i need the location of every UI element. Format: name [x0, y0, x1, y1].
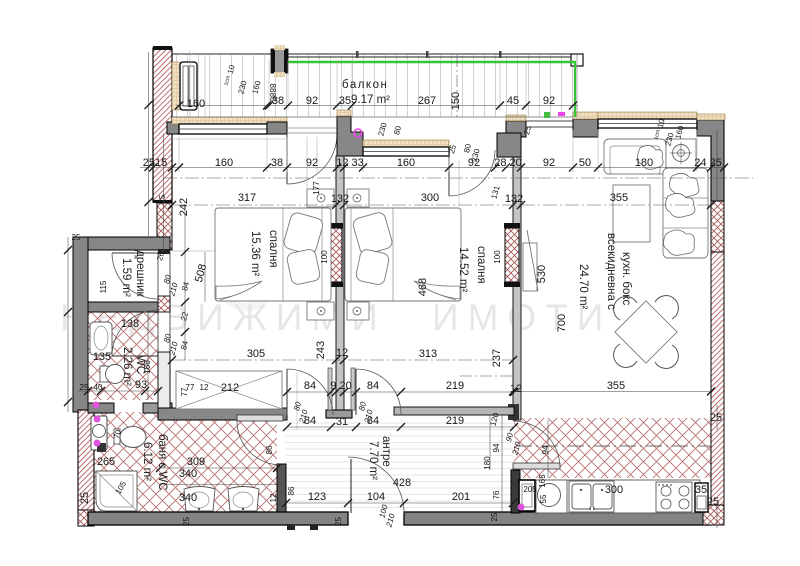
svg-text:309: 309 — [187, 456, 205, 468]
svg-text:123: 123 — [308, 491, 326, 503]
svg-text:84: 84 — [304, 415, 316, 427]
svg-text:балкон: балкон — [342, 79, 388, 91]
svg-text:25: 25 — [182, 517, 191, 526]
svg-text:25: 25 — [490, 512, 499, 521]
svg-text:7.70 m²: 7.70 m² — [367, 441, 379, 480]
svg-text:дрешник: дрешник — [134, 250, 146, 298]
svg-text:24 25: 24 25 — [694, 157, 722, 169]
svg-text:25: 25 — [710, 412, 722, 424]
svg-text:94: 94 — [541, 445, 550, 454]
svg-text:86: 86 — [287, 486, 296, 495]
svg-text:25: 25 — [79, 492, 91, 504]
svg-text:86: 86 — [265, 445, 274, 454]
svg-text:115: 115 — [99, 280, 108, 293]
svg-text:45: 45 — [507, 95, 519, 107]
svg-text:237: 237 — [491, 349, 503, 367]
svg-text:спалня: спалня — [267, 230, 279, 268]
svg-text:50: 50 — [579, 157, 591, 169]
svg-text:267: 267 — [418, 95, 436, 107]
svg-text:12: 12 — [269, 493, 278, 502]
svg-text:15.36 m²: 15.36 m² — [249, 231, 261, 277]
svg-text:76: 76 — [492, 490, 501, 499]
svg-text:2.26 m²: 2.26 m² — [121, 347, 133, 386]
svg-text:100: 100 — [320, 250, 329, 264]
svg-text:305: 305 — [247, 348, 265, 360]
svg-text:77: 77 — [180, 387, 189, 396]
svg-text:55: 55 — [539, 494, 548, 503]
svg-text:24.70 m²: 24.70 m² — [577, 264, 589, 310]
svg-text:12 33: 12 33 — [336, 157, 364, 169]
svg-text:꞉: ꞉ — [337, 393, 346, 395]
svg-text:баня с WC: баня с WC — [156, 434, 168, 491]
svg-text:9 20: 9 20 — [330, 380, 351, 392]
svg-text:2515: 2515 — [143, 157, 167, 169]
svg-text:700: 700 — [556, 314, 568, 332]
svg-text:25: 25 — [72, 233, 81, 242]
svg-text:177: 177 — [312, 181, 321, 195]
svg-text:135: 135 — [93, 351, 111, 363]
svg-text:265: 265 — [97, 456, 115, 468]
svg-text:88: 88 — [268, 93, 277, 102]
svg-text:300: 300 — [421, 192, 439, 204]
svg-text:25: 25 — [158, 194, 167, 203]
svg-text:313: 313 — [419, 348, 437, 360]
svg-text:92: 92 — [306, 157, 318, 169]
svg-text:25: 25 — [334, 517, 343, 526]
svg-text:166: 166 — [143, 360, 152, 374]
svg-text:31: 31 — [336, 416, 348, 428]
svg-text:205: 205 — [523, 485, 537, 494]
svg-text:35: 35 — [339, 95, 351, 107]
svg-text:219: 219 — [446, 380, 464, 392]
svg-text:468: 468 — [417, 278, 429, 296]
svg-text:317: 317 — [238, 192, 256, 204]
svg-text:всекидневна с: всекидневна с — [605, 233, 617, 310]
svg-text:132: 132 — [331, 193, 349, 205]
svg-text:84: 84 — [367, 380, 379, 392]
svg-text:160: 160 — [187, 98, 205, 110]
svg-text:28 20: 28 20 — [494, 157, 522, 169]
svg-text:300: 300 — [605, 484, 623, 496]
svg-text:40: 40 — [94, 383, 103, 392]
svg-text:100: 100 — [493, 250, 502, 264]
svg-text:92: 92 — [543, 95, 555, 107]
svg-text:150: 150 — [450, 92, 462, 110]
svg-text:25: 25 — [80, 383, 89, 392]
svg-text:спалня: спалня — [475, 246, 487, 284]
svg-text:14.52 m²: 14.52 m² — [457, 247, 469, 293]
svg-text:160: 160 — [215, 157, 233, 169]
svg-text:25: 25 — [707, 496, 719, 508]
svg-text:антре: антре — [380, 436, 392, 467]
svg-text:9.17 m²: 9.17 m² — [351, 94, 390, 106]
svg-text:132: 132 — [505, 193, 523, 205]
svg-text:219: 219 — [446, 415, 464, 427]
svg-text:340: 340 — [179, 492, 197, 504]
svg-text:12: 12 — [200, 383, 209, 392]
svg-text:243: 243 — [315, 341, 327, 359]
svg-text:428: 428 — [393, 477, 411, 489]
svg-text:94: 94 — [492, 443, 501, 452]
svg-text:кухн. бокс: кухн. бокс — [620, 252, 632, 306]
svg-text:35: 35 — [695, 484, 707, 496]
svg-text:84: 84 — [304, 380, 316, 392]
svg-text:12: 12 — [510, 383, 522, 395]
svg-text:201: 201 — [452, 491, 470, 503]
svg-text:38: 38 — [271, 157, 283, 169]
svg-text:180: 180 — [635, 157, 653, 169]
svg-text:104: 104 — [367, 491, 385, 503]
svg-text:165: 165 — [538, 474, 547, 488]
svg-text:212: 212 — [221, 382, 239, 394]
svg-text:242: 242 — [178, 198, 190, 216]
svg-text:1.59 m²: 1.59 m² — [120, 258, 132, 297]
svg-text:160: 160 — [397, 157, 415, 169]
svg-text:355: 355 — [607, 380, 625, 392]
svg-text:84: 84 — [367, 415, 379, 427]
svg-text:6.12 m²: 6.12 m² — [141, 442, 153, 481]
svg-text:92: 92 — [306, 95, 318, 107]
svg-text:355: 355 — [610, 192, 628, 204]
svg-text:180: 180 — [483, 456, 492, 470]
svg-text:92: 92 — [543, 157, 555, 169]
svg-text:138: 138 — [121, 318, 139, 330]
svg-text:530: 530 — [536, 265, 548, 283]
svg-text:93: 93 — [135, 379, 147, 391]
svg-text:12: 12 — [336, 347, 348, 359]
svg-text:340: 340 — [179, 468, 197, 480]
